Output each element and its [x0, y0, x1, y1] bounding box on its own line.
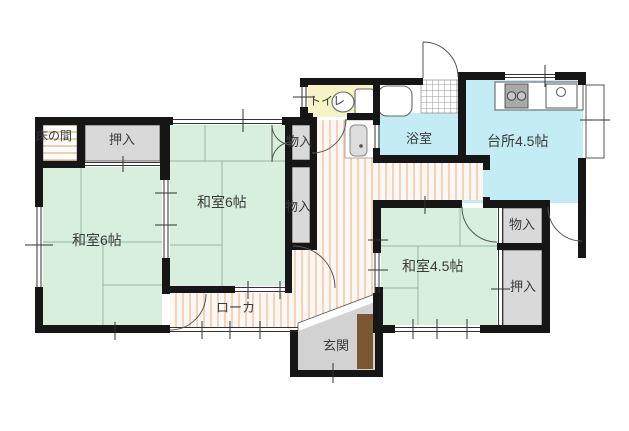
storage-east-label: 物入 [509, 218, 535, 232]
corridor-label: ローカ [216, 301, 255, 315]
floor-plan-drawing [0, 0, 629, 431]
tile-landing-floor [421, 80, 458, 113]
storage-mid-lower-label: 物入 [285, 200, 311, 214]
washbasin-icon [350, 125, 367, 156]
entrance-door [357, 314, 373, 369]
sink-icon [546, 84, 577, 108]
stove-icon [505, 84, 528, 108]
washitsu-west-label: 和室6帖 [72, 233, 122, 248]
bathtub-icon [378, 86, 412, 116]
kitchen-back-door [548, 207, 582, 241]
entrance-label: 玄関 [323, 339, 349, 353]
hall-east-floor [373, 163, 483, 200]
floor-plan: 床の間 押入 和室6帖 和室6帖 物入 物入 トイレ 浴室 台所4.5帖 和室4… [0, 0, 629, 431]
washitsu-mid-label: 和室6帖 [197, 195, 247, 210]
bath-label: 浴室 [406, 132, 432, 146]
kitchen-label: 台所4.5帖 [487, 134, 548, 149]
back-door-north [423, 42, 458, 78]
oshiire-nw-label: 押入 [109, 133, 135, 147]
oshiire-east-label: 押入 [510, 280, 536, 294]
tokonoma-label: 床の間 [36, 130, 72, 143]
kitchen-counter [495, 82, 583, 110]
washitsu-east-label: 和室4.5帖 [402, 259, 463, 274]
storage-mid-upper-label: 物入 [286, 135, 312, 149]
window-kitchen-east [580, 85, 610, 158]
toilet-label: トイレ [309, 95, 345, 108]
hall-lower-floor [292, 250, 317, 293]
